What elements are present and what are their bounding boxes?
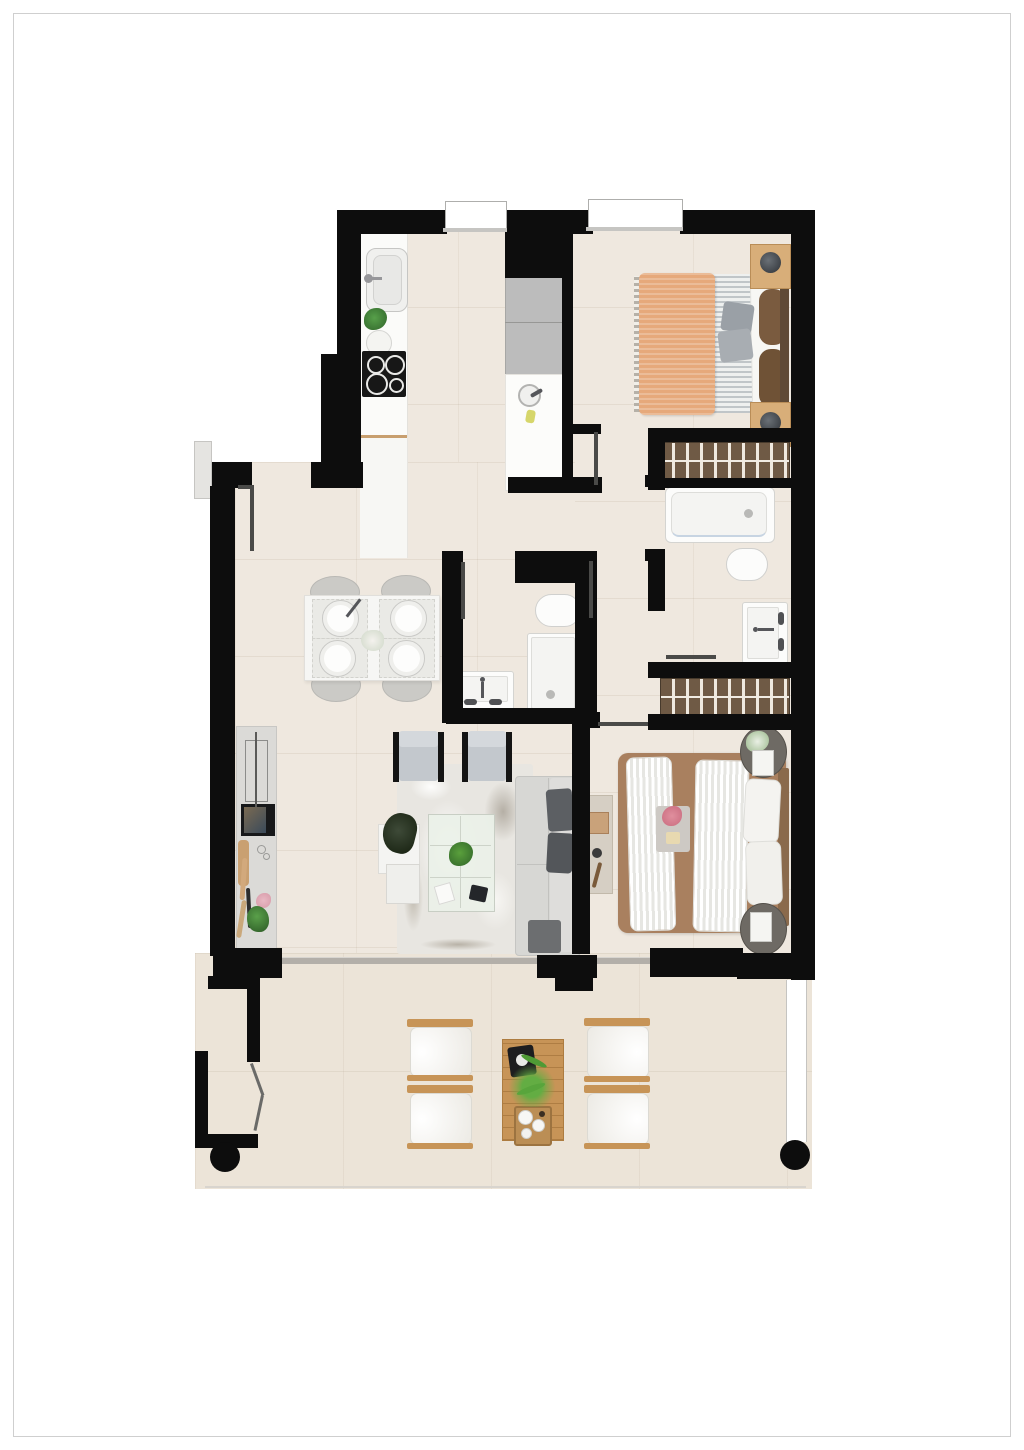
wall	[648, 428, 793, 442]
wall	[648, 478, 793, 488]
wall	[648, 714, 793, 730]
bedroom2-bench	[587, 795, 613, 894]
bed1-pillow-gray	[717, 328, 754, 363]
wall-nub	[645, 475, 659, 487]
tray-cup	[532, 1119, 545, 1132]
entry-door-leaf	[250, 489, 254, 551]
cooktop-burner	[367, 356, 385, 374]
nightstand-book	[752, 750, 774, 776]
bed2-pillow	[742, 778, 781, 844]
vanity-basin	[747, 607, 779, 659]
wall	[648, 549, 665, 611]
wall	[555, 977, 593, 991]
bedroom1-door-leaf	[594, 432, 598, 485]
bed2-pillow	[745, 840, 783, 905]
fridge-unit	[505, 274, 564, 376]
bed2-tray-item	[666, 832, 680, 844]
tray-item-dark	[539, 1111, 545, 1117]
cooktop-burner	[389, 378, 404, 393]
wall	[537, 955, 597, 978]
terrace-edge-line	[205, 1186, 806, 1188]
vanity-faucet	[758, 628, 774, 631]
window-bedroom-1	[588, 199, 683, 230]
tray-cup	[521, 1128, 532, 1139]
kitchen-sink-basin	[373, 255, 402, 305]
wall	[562, 232, 573, 492]
wall	[321, 354, 361, 466]
vanity-faucet-dot-2	[480, 677, 485, 682]
plate	[319, 640, 356, 677]
nightstand-lamp	[760, 252, 781, 273]
toilet-bathroom-1	[726, 548, 768, 581]
wardrobe-bedroom-1	[660, 442, 790, 480]
bed2-runner	[693, 760, 750, 933]
armchair-back	[468, 731, 506, 747]
cooktop-burner	[366, 373, 388, 395]
lounge-chair	[407, 1085, 473, 1149]
coffee-table-seam	[430, 877, 491, 878]
sideboard-plant	[247, 906, 269, 932]
bathtub-drain	[744, 509, 753, 518]
bed1-headboard	[780, 283, 789, 413]
cooktop-burner	[385, 355, 405, 375]
vanity-door-leaf	[666, 655, 716, 659]
ottoman	[528, 920, 561, 953]
vanity-handle	[778, 612, 784, 625]
bench-frame	[589, 812, 609, 834]
terrace-column	[780, 1140, 810, 1170]
wall	[791, 210, 815, 980]
chair-wood-bar	[584, 1018, 650, 1026]
wall	[575, 551, 597, 724]
armchair-rail	[506, 732, 512, 782]
vanity-handle	[778, 638, 784, 651]
chair-wood-bar	[407, 1019, 473, 1027]
fridge-seam	[505, 322, 562, 323]
lounge-chair	[584, 1085, 650, 1149]
sofa-cushion-dark	[546, 832, 574, 873]
wall	[442, 551, 463, 723]
floor-plan	[0, 0, 1024, 1450]
wall	[446, 708, 597, 724]
sofa-seam	[517, 864, 548, 865]
wall	[311, 462, 363, 488]
terrace-column	[210, 1142, 240, 1172]
bathroom1-door-leaf	[589, 561, 593, 618]
armchair-rail	[438, 732, 444, 782]
vanity-handle-2	[489, 699, 502, 705]
chair-cushion	[410, 1027, 472, 1077]
tray-cup	[518, 1110, 533, 1125]
vanity-faucet-dot	[753, 627, 758, 632]
wall	[213, 948, 282, 978]
chair-cushion	[410, 1093, 472, 1145]
shower-drain	[546, 690, 555, 699]
plate	[390, 600, 427, 637]
wall	[208, 976, 247, 989]
wall	[650, 948, 743, 977]
wall-art-line	[255, 732, 257, 808]
wall	[508, 477, 602, 493]
tv-screen	[244, 807, 266, 833]
chair-cushion	[587, 1093, 649, 1145]
lounge-chair	[407, 1019, 473, 1081]
kitchen-counter-lower	[360, 438, 408, 558]
vanity-faucet-2	[481, 682, 484, 698]
sofa-cushion-dark	[546, 788, 575, 832]
bathroom2-door-leaf	[461, 562, 465, 619]
decor-ring	[263, 853, 270, 860]
nightstand-book	[750, 912, 772, 942]
chair-wood-bar	[584, 1085, 650, 1093]
chair-wood-bar	[407, 1075, 473, 1081]
chair-wood-bar	[584, 1076, 650, 1082]
bed1-orange-throw	[639, 273, 715, 415]
window-sill	[586, 227, 683, 231]
bedroom2-door-leaf	[598, 722, 648, 726]
window-sill	[443, 228, 507, 232]
sliding-door-track	[597, 957, 653, 964]
kitchen-faucet-stem	[371, 277, 382, 280]
wall	[572, 712, 590, 954]
armchair-back	[399, 731, 438, 747]
bench-decor	[592, 848, 602, 858]
coffee-table-remote	[469, 884, 489, 902]
chair-wood-bar	[584, 1143, 650, 1149]
window-kitchen	[445, 201, 507, 231]
vanity-handle-2	[464, 699, 477, 705]
wall	[648, 662, 793, 678]
sliding-door-track	[282, 957, 537, 964]
wall	[210, 486, 235, 956]
chair-cushion	[587, 1026, 649, 1078]
chair-wood-bar	[407, 1143, 473, 1149]
wall	[737, 953, 815, 979]
lounge-chair	[584, 1018, 650, 1082]
glass-balustrade	[786, 980, 807, 1142]
plate	[388, 640, 425, 677]
wall	[247, 976, 260, 1062]
chair-wood-bar	[407, 1085, 473, 1093]
wall	[195, 1051, 208, 1139]
centerpiece-flowers	[361, 630, 384, 651]
wall	[337, 210, 361, 362]
side-table	[386, 864, 420, 904]
